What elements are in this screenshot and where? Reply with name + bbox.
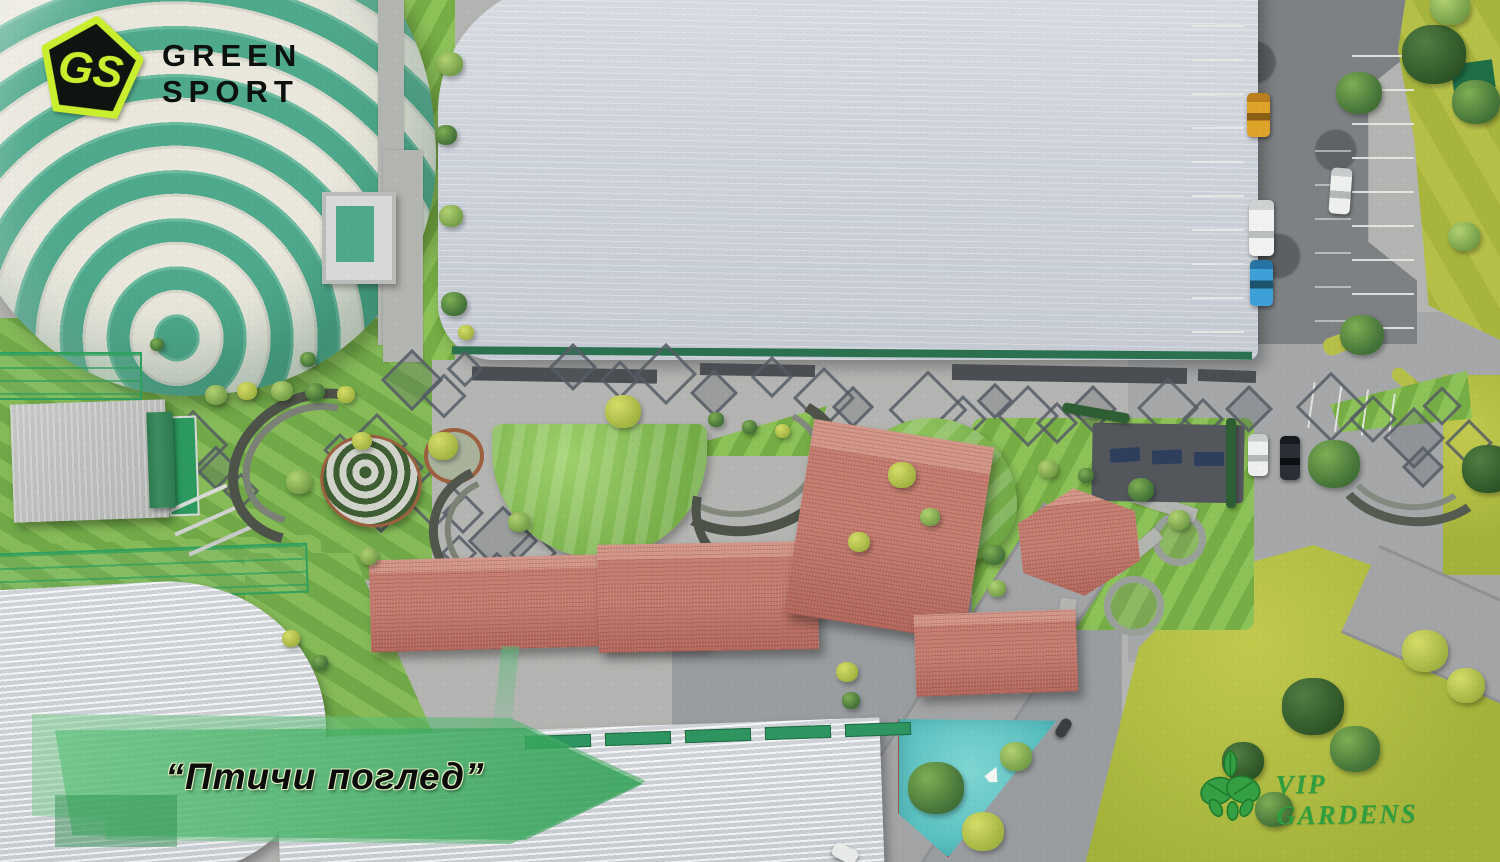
tree [605,395,641,428]
tree [508,512,530,532]
tree [439,205,463,227]
car-dark-parked [1280,436,1300,480]
tree [842,692,860,709]
green-sport-wordmark-line1: GREEN [162,38,302,74]
aerial-site-render: “Птичи поглед” GS GREEN SPORT VIP GARDEN… [0,0,1500,862]
tree [352,432,372,450]
caption-banner-step [55,795,177,847]
green-sport-monogram: GS [55,40,126,99]
sunbed-panel [1152,449,1182,464]
tree [300,352,316,367]
tree [435,125,457,145]
caption-banner-fold [492,646,519,732]
roof-planter [685,728,751,743]
dome-entrance-interior [336,206,374,262]
tree [908,762,964,814]
green-sport-wordmark-line2: SPORT [162,74,299,110]
tree [888,462,916,488]
tree [1000,742,1032,771]
sports-hall-roof [438,0,1258,360]
tree [1447,668,1485,703]
car-blue [1250,260,1273,306]
tree [1452,80,1500,124]
court-fence-upper-left [0,352,142,400]
hedge-row [1226,418,1236,508]
tree [271,381,293,401]
tree [742,420,757,434]
vip-gardens-leaf-icon [1196,746,1280,824]
clubhouse-roof [10,399,169,522]
tree [1462,445,1500,493]
car-white-parked [1248,434,1268,476]
tree [1168,510,1190,530]
tree [428,432,458,460]
car-white-driving [1328,167,1352,214]
red-roof-annex [914,609,1079,697]
tree [836,662,858,682]
tree [458,325,474,340]
tree [1448,222,1480,251]
green-sport-logo: GS GREEN SPORT [40,14,320,126]
roof-planter [765,725,831,740]
tree [1078,468,1094,483]
tree [150,338,164,351]
tree [1282,678,1344,735]
vip-gardens-logo: VIP GARDENS [1196,742,1476,832]
tree [360,548,378,565]
parking-markings [1192,25,1244,335]
tree [237,382,257,400]
vip-gardens-wordmark: VIP GARDENS [1275,766,1476,831]
red-roof-main-block [784,419,994,641]
tree [988,580,1006,597]
tree [983,545,1005,565]
tree [205,385,227,405]
building-signage [146,412,175,509]
tree [441,292,467,316]
walkway-planter [952,364,1187,384]
green-sport-pentagon-icon: GS [34,10,148,124]
roof-planter [845,722,911,737]
tree [286,470,312,494]
roof-planter [605,731,671,746]
tree [848,532,870,552]
tree [282,630,300,647]
sunbed-panel [1194,452,1224,466]
paving-diamond [600,360,640,400]
tree [1402,630,1448,672]
van-white [1249,200,1274,256]
tree [708,412,724,427]
car-yellow [1247,93,1270,137]
spa-circle [1104,576,1164,636]
tree [962,812,1004,851]
tree [1336,72,1382,114]
caption-text: “Птичи поглед” [110,756,540,798]
tree [305,383,325,401]
sunbed-panel [1110,447,1141,463]
tree [1128,478,1154,502]
tree [312,655,328,670]
tree [920,508,940,526]
tree [1308,440,1360,488]
tree [337,386,355,403]
walkway-planter [1198,369,1256,383]
tree [1038,460,1058,478]
tree [437,52,463,76]
tree [1340,315,1384,355]
tree [1402,25,1466,84]
tree [775,424,790,438]
